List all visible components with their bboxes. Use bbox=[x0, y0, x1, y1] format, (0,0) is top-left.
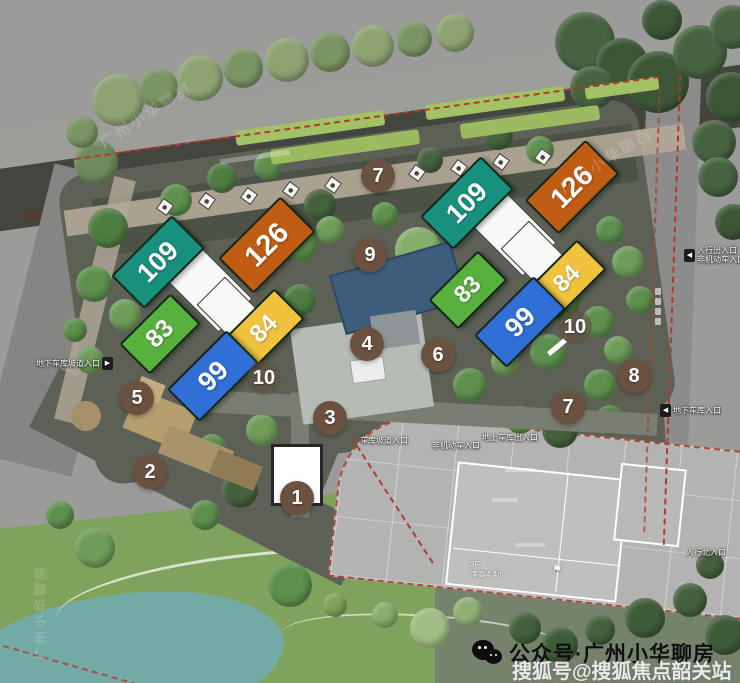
diagonal-watermark: 广州小华聊房 bbox=[95, 76, 197, 152]
diagonal-watermark: 广州小华聊房 bbox=[30, 564, 49, 660]
sohu-watermark-text: 搜狐号@搜狐焦点韶关站 bbox=[512, 655, 732, 683]
site-plan-image: ⚑ 109126838499109126838499 1234567789101… bbox=[0, 0, 740, 683]
watermarks-layer: 广州小华聊房 广州小华聊房 广州小华聊房 公众号·广州小华聊房 搜狐号@搜狐焦点… bbox=[0, 0, 740, 683]
diagonal-watermark: 广州小华聊房 bbox=[555, 121, 657, 197]
wechat-icon bbox=[472, 640, 508, 668]
